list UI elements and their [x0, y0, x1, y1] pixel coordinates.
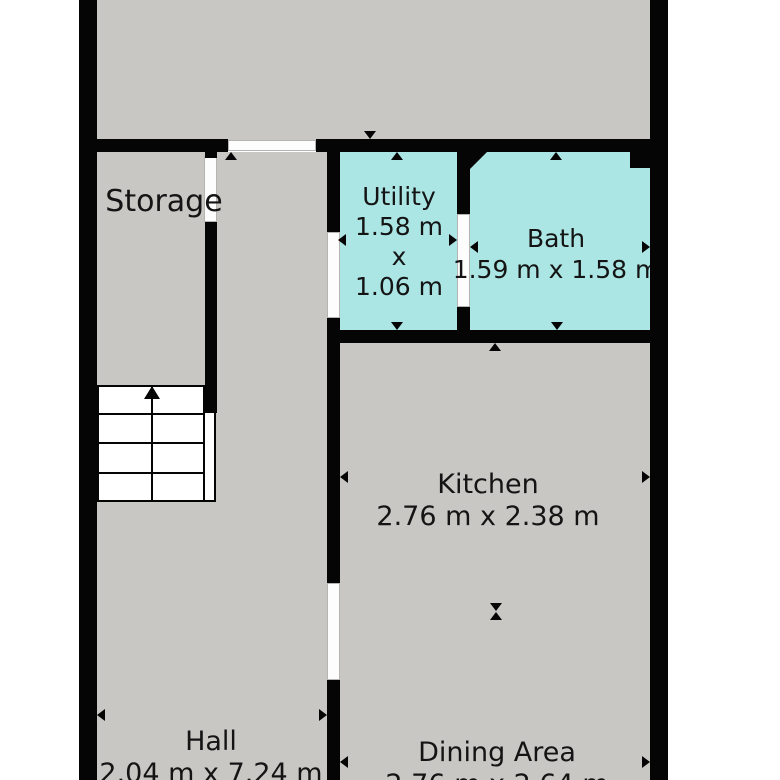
wall-utility-bath-upper — [457, 152, 470, 214]
wall-outer-right — [650, 0, 668, 780]
measure-arrow-up-icon — [490, 612, 502, 620]
hall-name: Hall — [99, 726, 322, 758]
measure-arrow-down-icon — [364, 131, 376, 139]
measure-arrow-up-icon — [225, 152, 237, 160]
stairs-landing-strip — [205, 413, 216, 502]
dining-name: Dining Area — [385, 737, 608, 769]
measure-arrow-down-icon — [391, 322, 403, 330]
bath-name: Bath — [453, 223, 660, 254]
bath-dims: 1.59 m x 1.58 m — [453, 254, 660, 285]
measure-arrow-left-icon — [340, 756, 348, 768]
room-kitchen-dining — [340, 343, 650, 780]
utility-dim-sep: x — [355, 242, 443, 272]
measure-arrow-right-icon — [319, 709, 327, 721]
kitchen-dims: 2.76 m x 2.38 m — [376, 501, 599, 533]
measure-arrow-up-icon — [391, 152, 403, 160]
measure-arrow-left-icon — [470, 241, 478, 253]
measure-arrow-right-icon — [642, 241, 650, 253]
wall-storage-stub — [205, 152, 217, 158]
dining-dims: 2.76 m x 2.64 m — [385, 769, 608, 780]
hall-dims: 2.04 m x 7.24 m — [99, 758, 322, 780]
wall-corridor-lower — [327, 680, 340, 780]
measure-arrow-left-icon — [338, 234, 346, 246]
stairs — [97, 385, 205, 502]
room-top — [97, 0, 650, 140]
wall-corridor-middle — [327, 318, 340, 583]
stair-divider-line — [151, 387, 153, 500]
door-top-room — [228, 140, 316, 151]
wall-storage — [205, 222, 217, 413]
room-label-kitchen: Kitchen 2.76 m x 2.38 m — [376, 469, 599, 533]
measure-arrow-up-icon — [489, 343, 501, 351]
utility-dim-height: 1.06 m — [355, 272, 443, 302]
measure-arrow-down-icon — [551, 322, 563, 330]
measure-arrow-right-icon — [642, 756, 650, 768]
wall-utility-bath-lower — [457, 307, 470, 330]
measure-arrow-right-icon — [449, 234, 457, 246]
measure-arrow-left-icon — [97, 709, 105, 721]
utility-name: Utility — [355, 182, 443, 212]
wall-outer-left — [79, 0, 97, 780]
room-label-storage: Storage — [105, 186, 222, 218]
measure-arrow-up-icon — [550, 152, 562, 160]
measure-arrow-down-icon — [490, 603, 502, 611]
room-label-dining: Dining Area 2.76 m x 2.64 m — [385, 737, 608, 780]
wall-bath-notch — [630, 152, 650, 168]
wall-utility-bath-bottom — [327, 330, 668, 343]
storage-name: Storage — [105, 186, 222, 218]
utility-dim-width: 1.58 m — [355, 212, 443, 242]
wall-top-right-segment — [316, 139, 668, 152]
wall-top-left-segment — [79, 139, 228, 152]
room-label-hall: Hall 2.04 m x 7.24 m — [99, 726, 322, 780]
stairs-up-arrow-icon — [144, 386, 160, 399]
floor-plan: Storage Utility 1.58 m x 1.06 m Bath 1.5… — [0, 0, 780, 780]
wall-corridor-upper — [327, 152, 340, 232]
room-label-utility: Utility 1.58 m x 1.06 m — [355, 182, 443, 302]
room-label-bath: Bath 1.59 m x 1.58 m — [453, 223, 660, 285]
kitchen-name: Kitchen — [376, 469, 599, 501]
door-kitchen — [327, 583, 340, 680]
measure-arrow-right-icon — [642, 471, 650, 483]
measure-arrow-left-icon — [340, 471, 348, 483]
